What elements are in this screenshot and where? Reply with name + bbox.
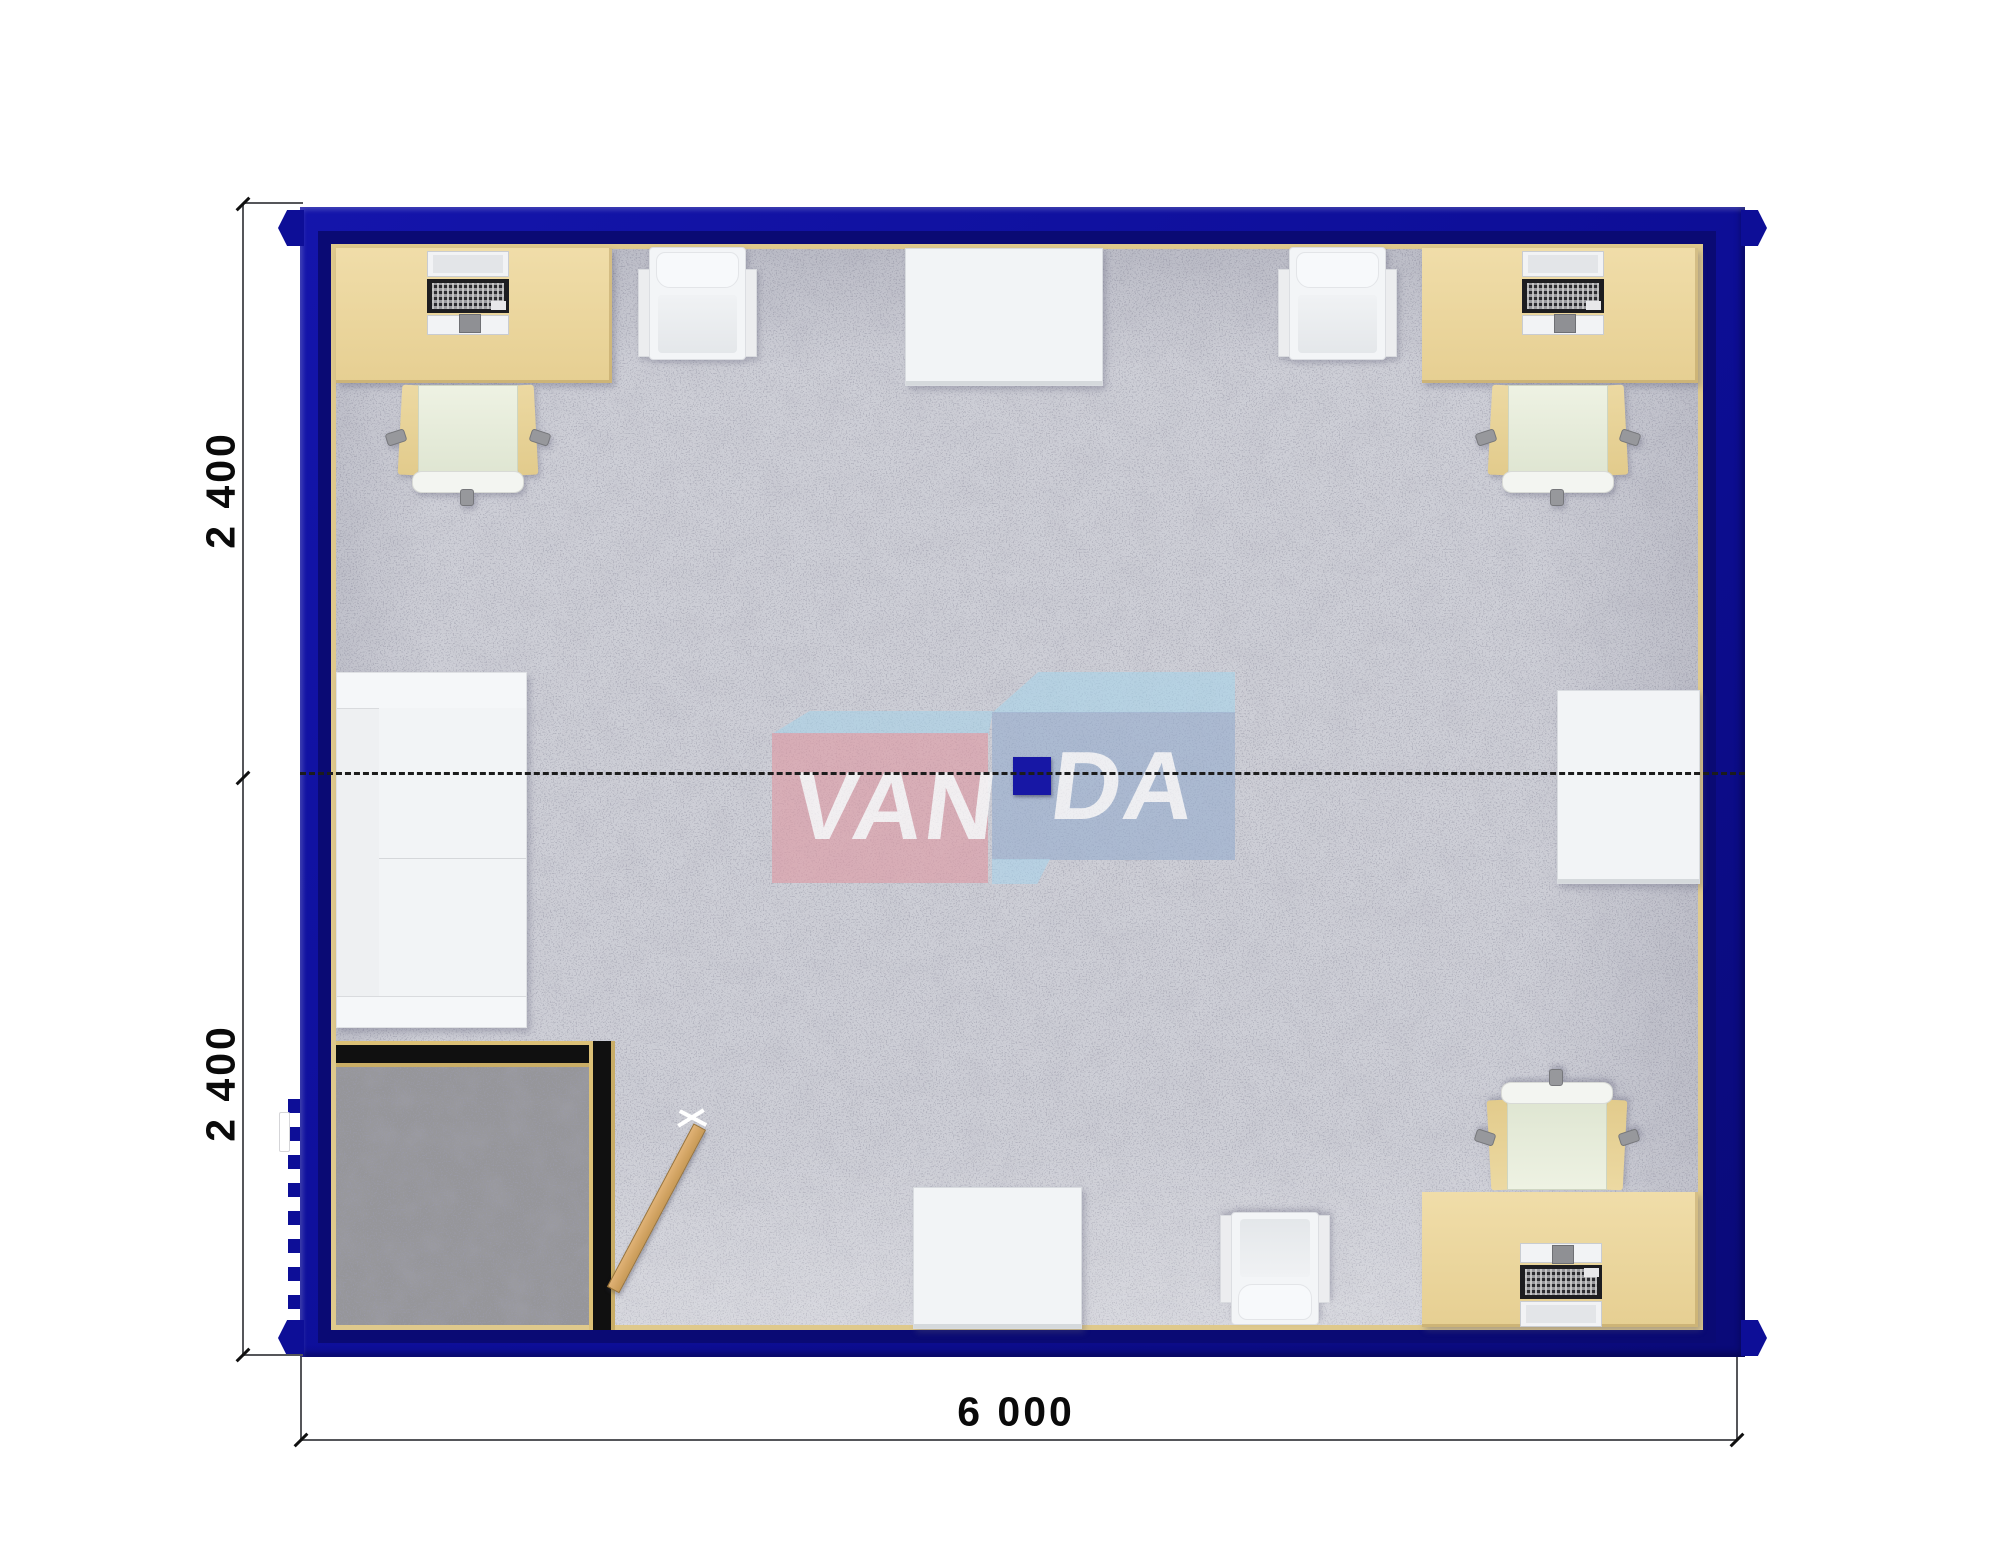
office-chair-top-left: [398, 385, 538, 493]
keyboard-notch: [1586, 301, 1601, 310]
chair-seat: [1507, 1096, 1607, 1190]
mouse: [1554, 314, 1576, 333]
axis-centerline: [300, 772, 1745, 775]
sofa-cushion: [379, 708, 526, 859]
entry-vestibule-floor: [336, 1067, 589, 1325]
armchair-seat: [1240, 1219, 1310, 1277]
extension-line-bottom-left: [243, 1354, 303, 1356]
sofa-backrest: [337, 673, 380, 1027]
extension-line-bottom-start: [300, 1357, 302, 1440]
keyboard-notch: [491, 301, 506, 310]
monitor-screen: [433, 255, 503, 273]
chair-seat: [418, 385, 518, 479]
chair-wheel: [460, 489, 474, 506]
armchair-seat: [1298, 295, 1377, 353]
chair-seat: [1508, 385, 1608, 479]
keyboard: [1520, 1265, 1602, 1299]
computer-top-right-icon: [1522, 251, 1604, 335]
sofa-cushion: [379, 859, 526, 999]
chair-wheel: [1550, 489, 1564, 506]
desk-return: [427, 315, 509, 335]
armchair-backrest: [656, 252, 739, 288]
extension-line-top-left: [243, 202, 303, 204]
armchair-body: [649, 247, 746, 360]
office-chair-top-right: [1488, 385, 1628, 493]
computer-bottom-right-icon: [1520, 1243, 1602, 1327]
armchair-seat: [658, 295, 737, 353]
corner-fitting-top-right-icon: [1741, 210, 1767, 246]
mouse: [1552, 1245, 1574, 1264]
keyboard: [427, 279, 509, 313]
chair-wheel: [1549, 1069, 1563, 1086]
keyboard-notch: [1584, 1268, 1599, 1277]
exterior-door-threshold: [279, 1112, 290, 1152]
support-column: [1013, 757, 1051, 795]
monitor-screen: [1526, 1305, 1596, 1323]
mouse: [459, 314, 481, 333]
monitor: [427, 251, 509, 277]
entry-partition-wall-top: [336, 1041, 615, 1067]
desk-return: [1522, 315, 1604, 335]
dimension-line-bottom: [301, 1439, 1738, 1441]
armchair-backrest: [1296, 252, 1379, 288]
desk-return: [1520, 1243, 1602, 1263]
table-right-wall: [1557, 690, 1700, 884]
armchair-top-left: [638, 247, 757, 365]
sofa-armrest: [337, 996, 526, 1027]
office-chair-bottom-right: [1487, 1082, 1627, 1190]
table-top-center: [905, 248, 1103, 386]
armchair-body: [1231, 1212, 1319, 1325]
floor-plan-canvas: VAN DA 2 400 2 400 6 000: [0, 0, 2000, 1561]
monitor: [1520, 1301, 1602, 1327]
entry-carpet-texture: [336, 1067, 589, 1325]
monitor: [1522, 251, 1604, 277]
monitor-screen: [1528, 255, 1598, 273]
sofa-armrest: [337, 673, 526, 709]
table-bottom-center: [913, 1187, 1082, 1329]
corner-fitting-bottom-right-icon: [1741, 1320, 1767, 1356]
computer-top-left-icon: [427, 251, 509, 335]
dimension-label-bottom: 6 000: [957, 1389, 1075, 1436]
armchair-body: [1289, 247, 1386, 360]
armchair-backrest: [1238, 1284, 1312, 1320]
dimension-label-left-bottom: 2 400: [198, 1024, 245, 1142]
armchair-top-right: [1278, 247, 1397, 365]
sofa: [336, 672, 527, 1028]
extension-line-bottom-end: [1736, 1357, 1738, 1440]
dimension-label-left-top: 2 400: [198, 431, 245, 549]
keyboard: [1522, 279, 1604, 313]
armchair-bottom: [1220, 1207, 1330, 1325]
corner-fitting-bottom-left-icon: [278, 1320, 304, 1356]
corner-fitting-top-left-icon: [278, 210, 304, 246]
